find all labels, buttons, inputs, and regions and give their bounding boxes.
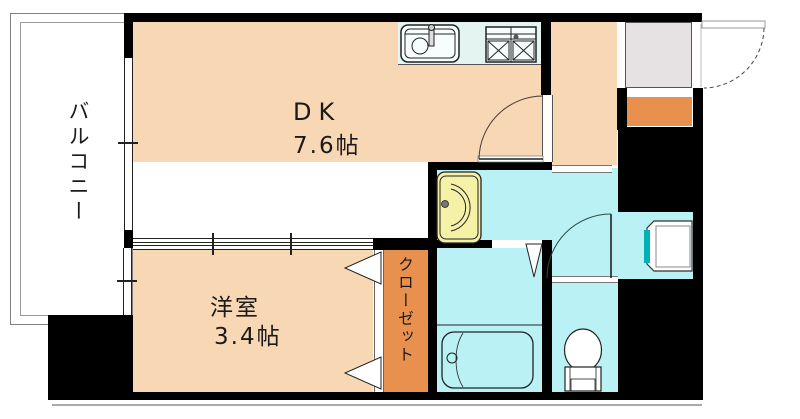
window-dk (124, 58, 133, 230)
wall-left-upper (124, 13, 133, 58)
partition-line (133, 245, 373, 246)
western-room-size: 3.4帖 (214, 317, 282, 351)
hallway (552, 22, 617, 165)
floor-plan: DK 7.6帖 洋室 3.4帖 クローゼット バルコニー (0, 0, 800, 419)
window-western-tick (117, 280, 137, 282)
wall-column-left-wet (428, 162, 437, 392)
wall-hall-genkan (617, 88, 627, 130)
kitchen-counter (398, 22, 542, 65)
washer-alcove (617, 212, 694, 279)
partition-tick (212, 233, 214, 255)
partition-line (133, 249, 373, 250)
opening-genkan-hall (617, 22, 625, 88)
bathroom (437, 248, 542, 392)
threshold-toilet (552, 276, 618, 283)
entrance-genkan (625, 22, 692, 88)
opening-bathroom (492, 240, 542, 248)
threshold-hall-washroom (552, 165, 612, 173)
wall-bathroom-top (428, 240, 492, 248)
wall-block-se (618, 279, 703, 392)
shadow-line (52, 404, 702, 406)
wall-bath-toilet (542, 240, 552, 392)
wall-corner-block-sw (48, 315, 133, 400)
entrance-door-icon (702, 21, 765, 88)
closet-door-strip (374, 250, 384, 392)
shoe-cabinet (627, 97, 692, 126)
washroom-lower (552, 240, 618, 276)
balcony-label: バルコニー (63, 100, 93, 245)
wall-left-mid (124, 230, 133, 248)
opening-dk-hall (542, 95, 553, 162)
partition-tick (290, 233, 292, 255)
closet-label: クローゼット (392, 256, 416, 390)
wall-closet-top (373, 238, 430, 250)
washroom (428, 168, 618, 240)
window-dk-tick (118, 142, 138, 144)
partition-line (133, 242, 373, 243)
wall-top (125, 13, 702, 22)
wall-bottom (48, 392, 703, 400)
partition-line (133, 238, 373, 239)
dk-room-size: 7.6帖 (293, 126, 361, 160)
wall-dk-washroom (428, 162, 552, 170)
dk-room-label: DK (293, 98, 341, 126)
toilet-room (552, 283, 618, 392)
wall-block-ne (618, 127, 703, 212)
wall-kitchen-right (541, 13, 551, 95)
